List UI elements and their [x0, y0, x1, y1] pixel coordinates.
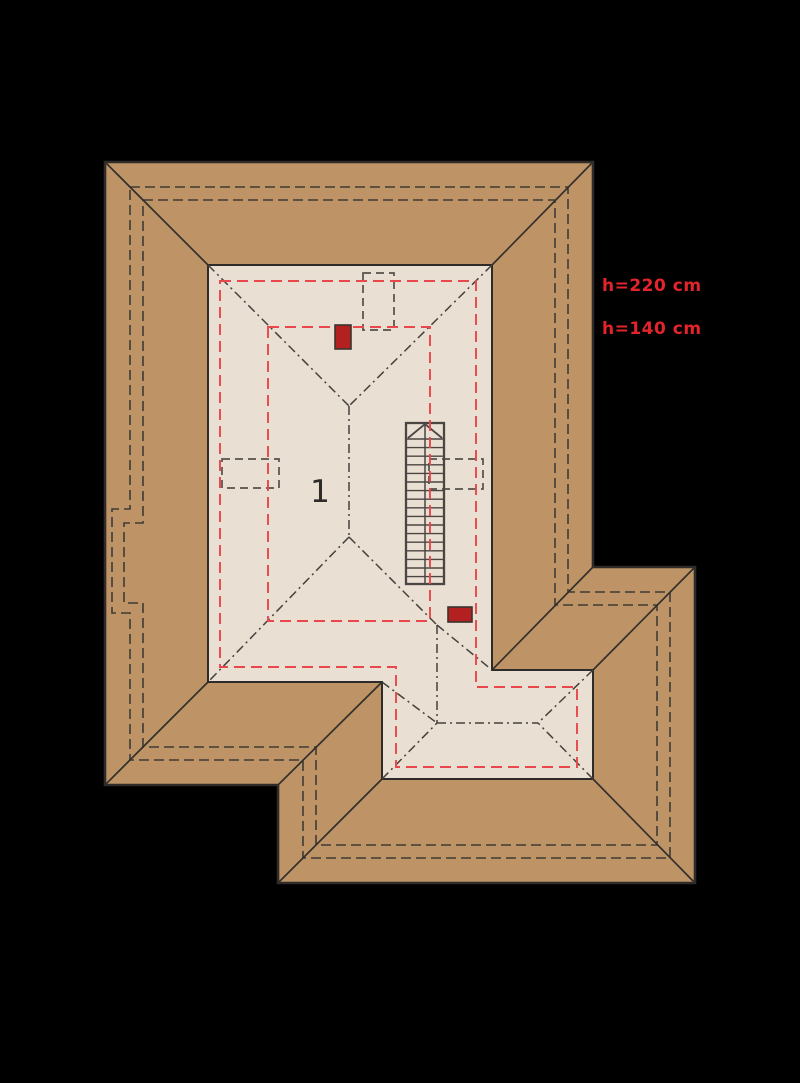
attic-plan-drawing: 1 h=220 cm h=140 cm: [0, 0, 800, 1083]
height-annotation-140: h=140 cm: [602, 319, 702, 339]
room-number-label: 1: [310, 474, 330, 510]
plan-canvas: 1 h=220 cm h=140 cm: [0, 0, 800, 1083]
height-annotation-220: h=220 cm: [602, 276, 702, 296]
